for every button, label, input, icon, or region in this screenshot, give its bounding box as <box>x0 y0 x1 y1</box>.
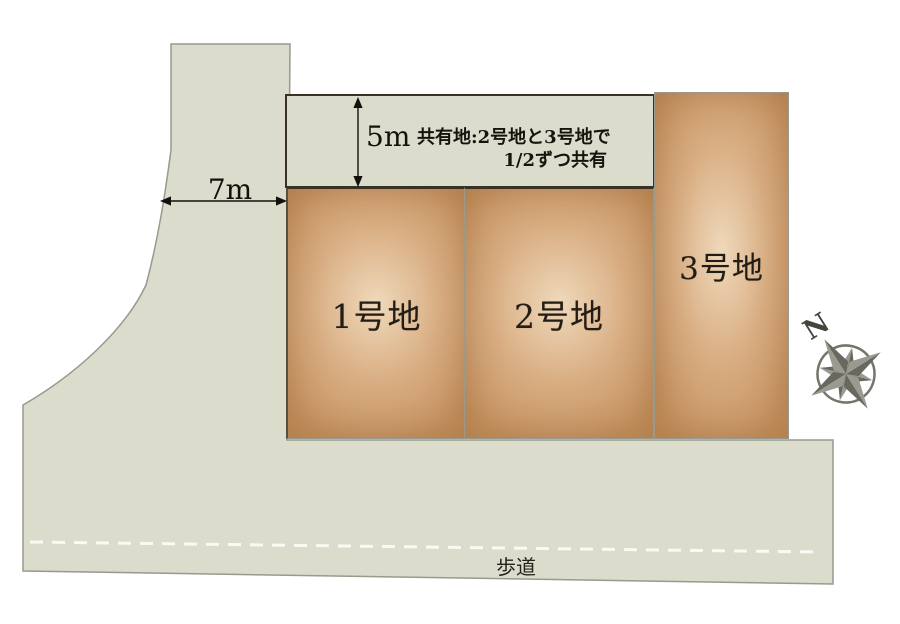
compass-rose-icon: N <box>774 292 900 430</box>
sidewalk-dashed-line <box>30 542 818 552</box>
lot-1-label: 1号地 <box>332 290 422 338</box>
shared-area-note: 共有地:2号地と3号地で 1/2ずつ共有 <box>417 126 607 172</box>
compass-north-label: N <box>798 307 835 346</box>
sidewalk-label: 歩道 <box>471 551 561 580</box>
shared-area-note-line1: 共有地:2号地と3号地で <box>417 126 607 149</box>
lot-layout-plan: 1号地 2号地 3号地 <box>0 0 900 624</box>
lot-3: 3号地 <box>654 92 789 439</box>
lot-2: 2号地 <box>464 187 654 439</box>
road-width-label: 7m <box>192 176 268 204</box>
lot-1: 1号地 <box>286 187 466 439</box>
shared-area-note-line2: 1/2ずつ共有 <box>417 149 607 172</box>
lot-3-label: 3号地 <box>679 243 764 288</box>
lot-2-label: 2号地 <box>514 290 604 338</box>
